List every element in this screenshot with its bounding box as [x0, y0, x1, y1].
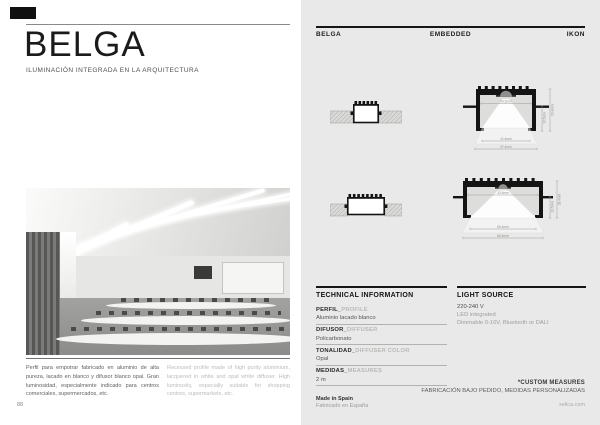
spec-value: Policarbonato [316, 336, 447, 342]
dim-inner-width: 43.5mm [497, 191, 509, 195]
page-subtitle: ILUMINACIÓN INTEGRADA EN LA ARQUITECTURA [26, 67, 199, 74]
dim-inner-bottom-width: 41.4mm [500, 137, 512, 141]
spec-panel: BELGA EMBEDDED IKON [301, 0, 600, 425]
product-photo [26, 188, 290, 355]
page-title: BELGA [24, 26, 146, 65]
photo-desk-row [56, 333, 290, 345]
dim-inner-width: 24.5mm [500, 99, 512, 103]
photo-curtain [26, 232, 60, 355]
header-rule [316, 26, 585, 28]
description-rule [26, 358, 290, 359]
photo-desk-row [81, 316, 290, 325]
custom-measures-note: *CUSTOM MEASURES FABRICACIÓN BAJO PEDIDO… [335, 380, 585, 394]
photo-chairs-row [71, 327, 286, 331]
photo-desk-row [106, 302, 276, 309]
dim-inner-height: 13.5mm [543, 112, 547, 124]
light-source-title: LIGHT SOURCE [457, 292, 586, 299]
spec-value: Opal [316, 356, 447, 362]
spec-value: Aluminio lacado blanco [316, 315, 447, 321]
dim-outer-bottom-width: 66.4mm [497, 234, 509, 238]
spec-label-en: DIFFUSER COLOR [355, 348, 409, 354]
technical-information-section: TECHNICAL INFORMATION PERFIL_PROFILE Alu… [316, 286, 447, 386]
spec-row-diffuser-color: TONALIDAD_DIFFUSER COLOR Opal [316, 345, 447, 366]
photo-window [60, 232, 76, 304]
spec-row-profile: PERFIL_PROFILE Aluminio lacado blanco [316, 304, 447, 325]
light-source-type: LED integrated [457, 312, 586, 318]
header-category: EMBEDDED [316, 31, 585, 38]
spec-label-es: PERFIL_ [316, 307, 341, 313]
spec-label-en: MEASURES [348, 368, 382, 374]
made-in-es: Fabricado en España [316, 403, 368, 409]
custom-measures-subtitle: FABRICACIÓN BAJO PEDIDO, MEDIDAS PERSONA… [335, 388, 585, 394]
mounted-section-drawing-large [330, 190, 402, 224]
dimensioned-section-drawing-small: 24.5mm 13.5mm 29.4mm 41.4mm 47.4mm [456, 84, 568, 154]
website-url: xelica.com [559, 402, 585, 408]
light-source-section: LIGHT SOURCE 220-240 V LED integrated Di… [457, 286, 586, 326]
page-number: 88 [17, 402, 23, 408]
light-source-voltage: 220-240 V [457, 304, 586, 310]
dimensioned-section-drawing-large: 43.5mm 13.5mm 28.4mm 60.4mm 66.4mm [453, 176, 571, 242]
spec-header: BELGA EMBEDDED IKON [316, 31, 585, 41]
header-collection: IKON [567, 31, 585, 38]
spec-label-en: DIFFUSER [347, 327, 378, 333]
made-in-note: Made in Spain Fabricado en España [316, 396, 368, 409]
description-spanish: Perfil para empotrar fabricado en alumin… [26, 364, 159, 399]
photo-chairs-row [96, 311, 281, 315]
mounted-section-drawing-small [330, 98, 402, 132]
description-english: Recessed profile made of high purity alu… [167, 364, 290, 399]
custom-measures-title: *CUSTOM MEASURES [335, 380, 585, 386]
dim-inner-height: 13.5mm [551, 201, 555, 213]
spec-label-es: MEDIDAS_ [316, 368, 348, 374]
dim-outer-height: 29.4mm [551, 104, 555, 116]
brand-logo [10, 7, 36, 19]
light-source-dimming: Dimmable 0-10V, Bluetooth or DALI [457, 320, 586, 326]
photo-whiteboard [222, 262, 284, 294]
spec-label-es: DIFUSOR_ [316, 327, 347, 333]
spec-label-es: TONALIDAD_ [316, 348, 355, 354]
dim-outer-bottom-width: 47.4mm [500, 145, 512, 149]
made-in-en: Made in Spain [316, 396, 368, 402]
technical-information-title: TECHNICAL INFORMATION [316, 292, 447, 299]
spec-row-diffuser: DIFUSOR_DIFFUSER Policarbonato [316, 325, 447, 346]
dim-inner-bottom-width: 60.4mm [497, 225, 509, 229]
spec-label-en: PROFILE [341, 307, 368, 313]
dim-outer-height: 28.4mm [558, 193, 562, 205]
catalog-spread: BELGA ILUMINACIÓN INTEGRADA EN LA ARQUIT… [0, 0, 600, 425]
photo-screen [194, 266, 212, 279]
